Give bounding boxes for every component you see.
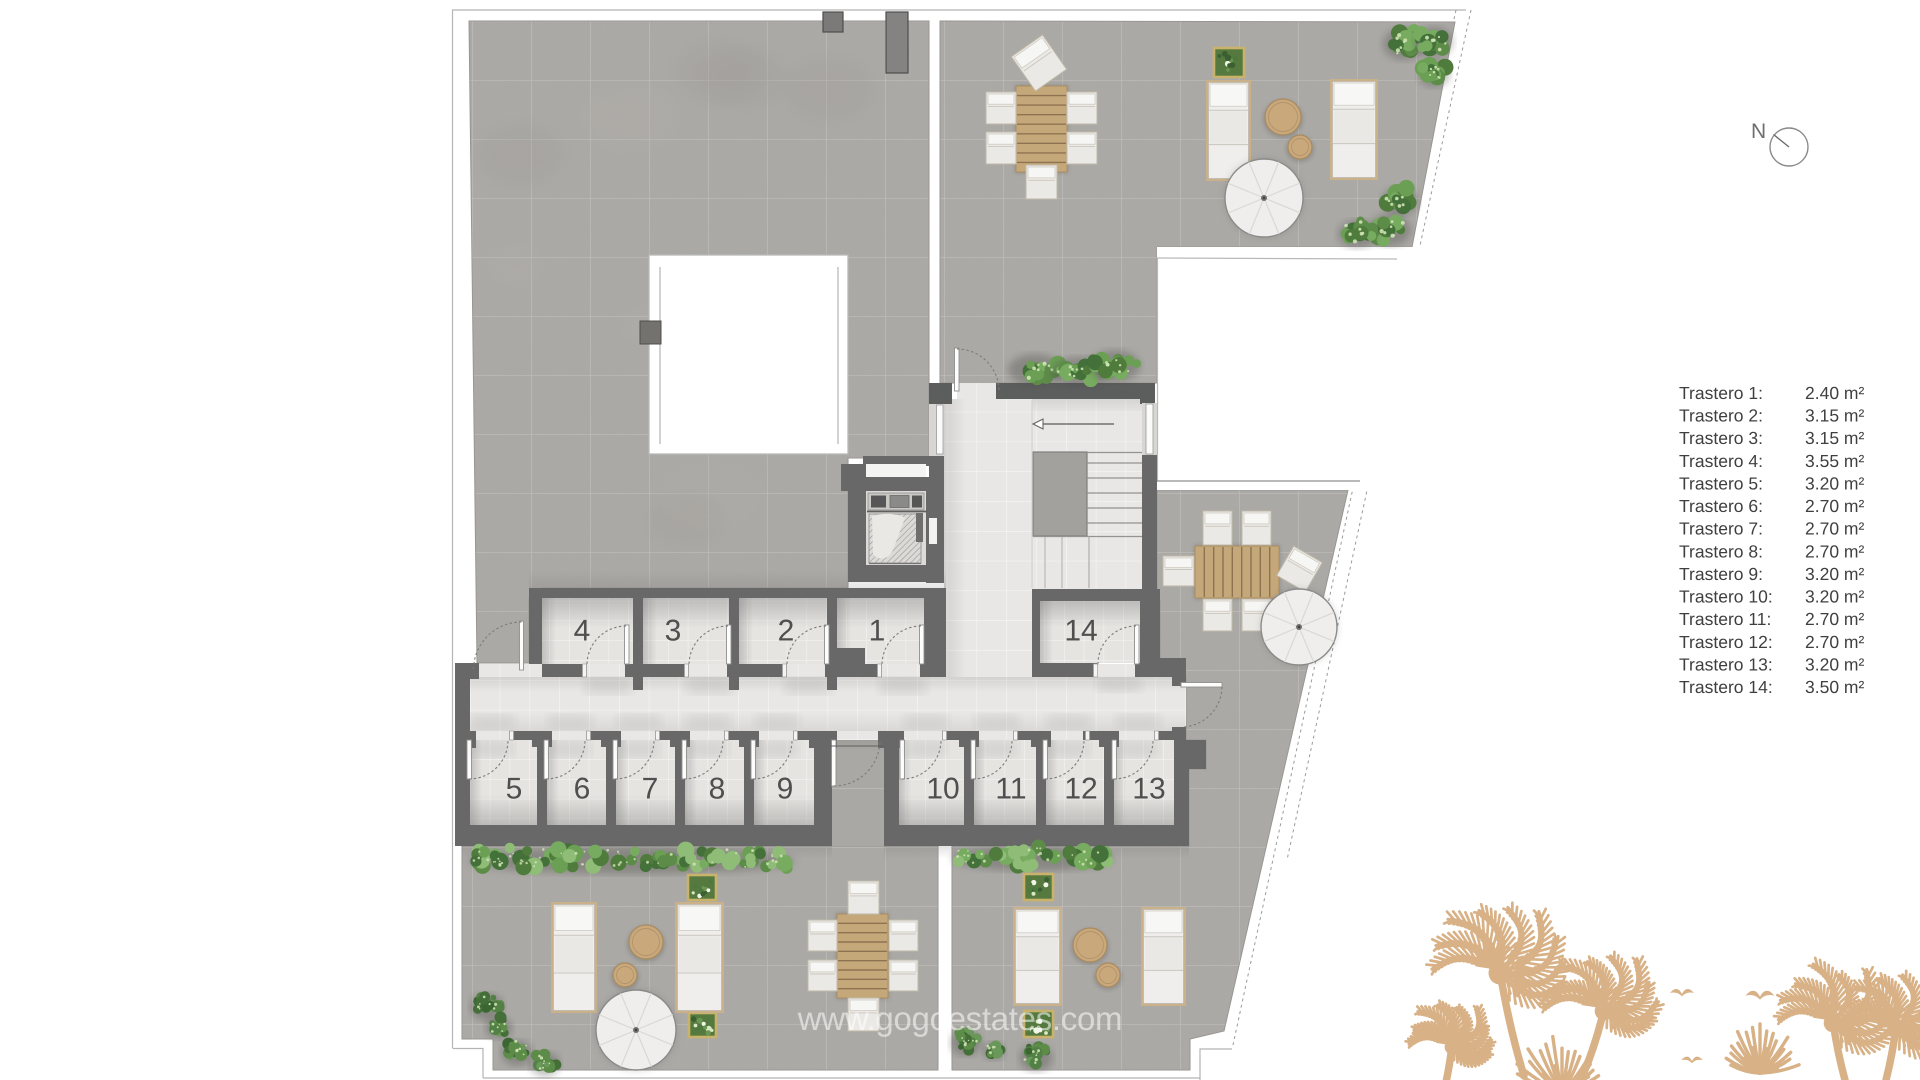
svg-text:Trastero 8:: Trastero 8: <box>1679 541 1763 561</box>
svg-text:Trastero 5:: Trastero 5: <box>1679 474 1763 494</box>
svg-text:3.20 m²: 3.20 m² <box>1805 564 1864 584</box>
svg-text:Trastero 6:: Trastero 6: <box>1679 496 1763 516</box>
svg-text:8: 8 <box>709 773 726 806</box>
svg-text:3.20 m²: 3.20 m² <box>1805 474 1864 494</box>
svg-text:3.15 m²: 3.15 m² <box>1805 428 1864 448</box>
svg-text:Trastero 14:: Trastero 14: <box>1679 677 1773 697</box>
svg-text:Trastero 1:: Trastero 1: <box>1679 383 1763 403</box>
svg-text:2: 2 <box>778 615 795 648</box>
svg-text:Trastero 13:: Trastero 13: <box>1679 654 1773 674</box>
svg-text:Trastero 10:: Trastero 10: <box>1679 587 1773 607</box>
svg-text:2.70 m²: 2.70 m² <box>1805 609 1864 629</box>
svg-text:Trastero 9:: Trastero 9: <box>1679 564 1763 584</box>
svg-text:2.70 m²: 2.70 m² <box>1805 632 1864 652</box>
svg-text:6: 6 <box>574 773 591 806</box>
svg-text:2.70 m²: 2.70 m² <box>1805 496 1864 516</box>
svg-text:5: 5 <box>506 773 523 806</box>
svg-text:N: N <box>1751 120 1766 143</box>
svg-text:11: 11 <box>995 773 1026 806</box>
svg-text:3.20 m²: 3.20 m² <box>1805 587 1864 607</box>
svg-text:1: 1 <box>869 615 886 648</box>
svg-text:2.40 m²: 2.40 m² <box>1805 383 1864 403</box>
svg-text:Trastero 4:: Trastero 4: <box>1679 451 1763 471</box>
svg-text:2.70 m²: 2.70 m² <box>1805 519 1864 539</box>
svg-text:Trastero 12:: Trastero 12: <box>1679 632 1773 652</box>
svg-text:2.70 m²: 2.70 m² <box>1805 541 1864 561</box>
svg-text:www.gogoestates.com: www.gogoestates.com <box>797 1000 1122 1037</box>
svg-text:14: 14 <box>1064 615 1097 648</box>
svg-text:Trastero 2:: Trastero 2: <box>1679 406 1763 426</box>
svg-text:9: 9 <box>777 773 794 806</box>
svg-text:13: 13 <box>1132 773 1165 806</box>
svg-text:3.15 m²: 3.15 m² <box>1805 406 1864 426</box>
svg-text:3.55 m²: 3.55 m² <box>1805 451 1864 471</box>
svg-text:4: 4 <box>574 615 591 648</box>
svg-text:3.20 m²: 3.20 m² <box>1805 654 1864 674</box>
svg-text:3.50 m²: 3.50 m² <box>1805 677 1864 697</box>
svg-text:Trastero 11:: Trastero 11: <box>1679 609 1771 629</box>
svg-text:12: 12 <box>1064 773 1097 806</box>
svg-text:3: 3 <box>665 615 682 648</box>
svg-text:10: 10 <box>926 773 959 806</box>
svg-text:7: 7 <box>642 773 659 806</box>
svg-text:Trastero 7:: Trastero 7: <box>1679 519 1763 539</box>
svg-text:Trastero 3:: Trastero 3: <box>1679 428 1763 448</box>
